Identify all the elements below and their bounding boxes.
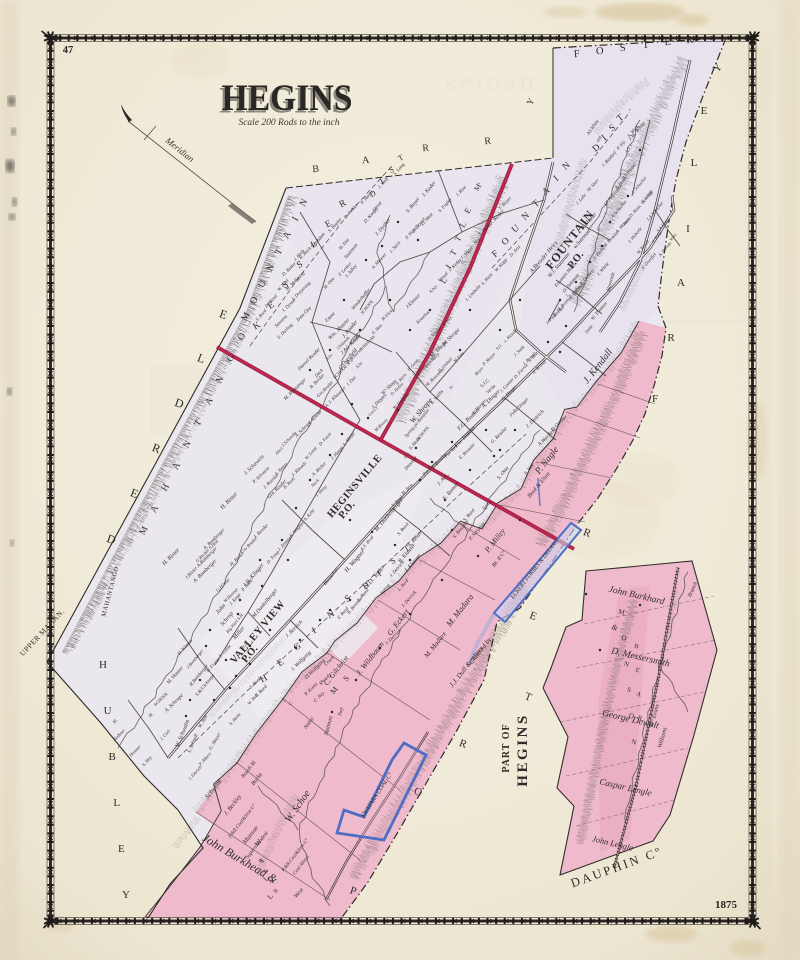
svg-text:F: F <box>652 393 658 405</box>
svg-text:E: E <box>701 105 708 117</box>
svg-text:O: O <box>596 46 605 58</box>
svg-text:S: S <box>619 43 626 54</box>
svg-text:R: R <box>667 332 675 344</box>
svg-text:H: H <box>99 659 107 671</box>
svg-text:47: 47 <box>63 45 74 56</box>
svg-text:1875: 1875 <box>715 899 738 911</box>
svg-text:R: R <box>484 136 492 148</box>
svg-text:F: F <box>573 49 580 60</box>
svg-text:HEGINS: HEGINS <box>442 74 534 95</box>
svg-text:HEGINS: HEGINS <box>515 713 531 786</box>
svg-text:U: U <box>104 705 112 717</box>
svg-text:A: A <box>677 277 685 289</box>
svg-text:L: L <box>113 797 120 809</box>
svg-text:L: L <box>691 157 698 169</box>
svg-text:Scale 200 Rods to the inch: Scale 200 Rods to the inch <box>238 118 339 128</box>
svg-text:PART OF: PART OF <box>501 723 512 772</box>
svg-text:B: B <box>109 751 116 763</box>
svg-text:E: E <box>118 843 125 855</box>
svg-text:B: B <box>312 164 320 176</box>
svg-text:R: R <box>686 35 694 47</box>
svg-text:E: E <box>664 37 671 49</box>
svg-text:I: I <box>686 223 690 235</box>
svg-text:HEGINS: HEGINS <box>222 78 353 119</box>
svg-text:Y: Y <box>122 889 130 901</box>
svg-text:R: R <box>422 143 430 155</box>
